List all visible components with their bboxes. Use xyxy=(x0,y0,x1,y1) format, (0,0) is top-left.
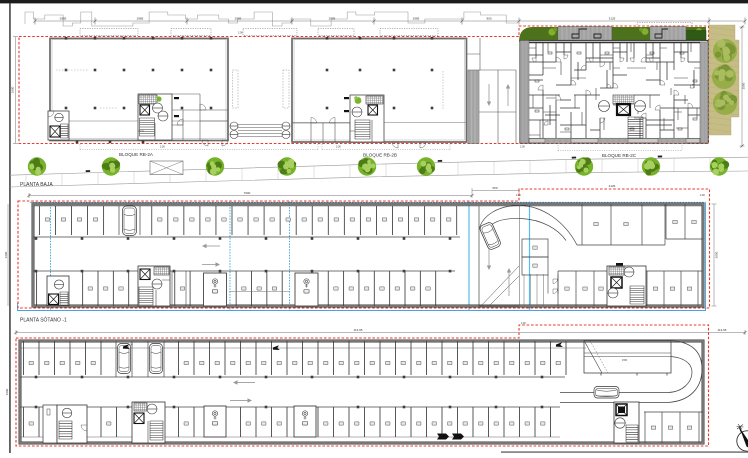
svg-text:113.95: 113.95 xyxy=(354,328,363,332)
svg-text:2000: 2000 xyxy=(715,251,719,258)
svg-text:1600: 1600 xyxy=(4,251,8,258)
svg-text:2985: 2985 xyxy=(329,17,336,21)
svg-text:3125: 3125 xyxy=(609,184,616,188)
svg-text:2.00: 2.00 xyxy=(238,32,243,35)
svg-text:1600: 1600 xyxy=(11,86,15,93)
svg-text:113.95: 113.95 xyxy=(718,328,727,332)
svg-text:2.00: 2.00 xyxy=(520,146,525,149)
svg-text:2985: 2985 xyxy=(235,17,242,21)
svg-text:BLOQUE RB-2B: BLOQUE RB-2B xyxy=(363,153,397,158)
svg-text:7600: 7600 xyxy=(244,191,251,195)
svg-text:1600: 1600 xyxy=(5,388,9,395)
svg-text:650: 650 xyxy=(492,186,497,190)
svg-text:BLOQUE RB-2A: BLOQUE RB-2A xyxy=(119,152,154,157)
svg-text:2500: 2500 xyxy=(742,82,746,89)
svg-text:2985: 2985 xyxy=(60,17,67,21)
svg-text:2985: 2985 xyxy=(413,17,420,21)
svg-text:BLOQUE RB-2C: BLOQUE RB-2C xyxy=(602,153,637,158)
svg-text:2.00: 2.00 xyxy=(160,146,165,149)
svg-text:2.00: 2.00 xyxy=(336,146,341,149)
svg-text:2.00: 2.00 xyxy=(700,194,705,197)
svg-text:PLANTA BAJA: PLANTA BAJA xyxy=(20,182,53,188)
svg-text:15%: 15% xyxy=(622,358,628,362)
svg-text:2985: 2985 xyxy=(137,17,144,21)
svg-text:3125: 3125 xyxy=(609,17,616,21)
svg-text:PLANTA SÓTANO -1: PLANTA SÓTANO -1 xyxy=(20,317,67,324)
svg-text:900: 900 xyxy=(486,17,491,21)
